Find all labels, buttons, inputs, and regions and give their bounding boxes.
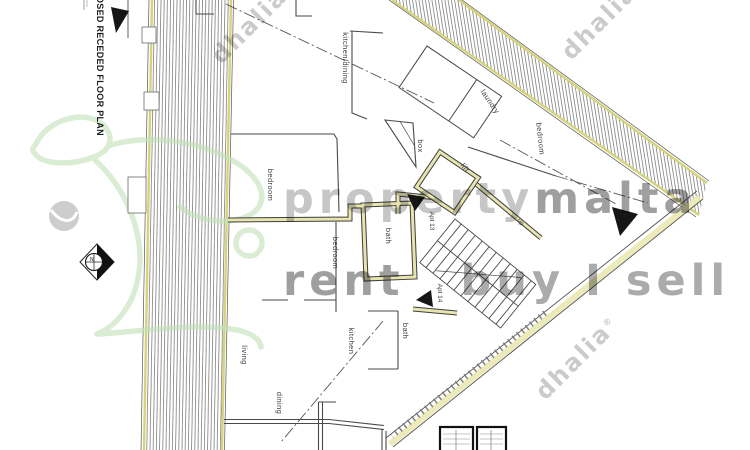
left-party-wall-band: [141, 0, 234, 450]
watermark-slogan-buy-sell: buy I sell: [461, 256, 731, 306]
room-label-kitchen-dining: kitchen/dining: [341, 32, 350, 83]
floor-plan-drawing: N OSED RECEDED FLOOR PLAN kitchen/dining…: [0, 0, 750, 450]
watermark-brand: propertymalta: [283, 174, 697, 224]
watermark-slogan: rentbuy I sell: [283, 256, 730, 306]
room-label-living: living: [240, 345, 249, 365]
watermark-brand-property: property: [283, 174, 534, 224]
room-label-bath-upper: bath: [384, 228, 393, 244]
watermark-slogan-rent: rent: [283, 256, 405, 306]
watermark-brand-malta: malta: [534, 174, 697, 224]
drawing-title: OSED RECEDED FLOOR PLAN: [95, 0, 105, 136]
room-label-kitchen: kitchen: [347, 328, 356, 355]
north-compass: N: [80, 244, 114, 280]
section-arrow-top-left: [111, 7, 129, 33]
room-label-bedroom-top-left: bedroom: [266, 169, 275, 201]
room-label-bath-lower: bath: [401, 323, 410, 339]
north-label: N: [90, 257, 94, 263]
legend-stamp-boxes: [440, 427, 506, 450]
room-label-box: box: [416, 139, 425, 152]
gray-ball-watermark: [49, 201, 79, 231]
room-label-dining: dining: [275, 392, 284, 414]
room-label-bedroom-top-right: bedroom: [534, 122, 546, 155]
floor-plan-page: N OSED RECEDED FLOOR PLAN kitchen/dining…: [0, 0, 750, 450]
